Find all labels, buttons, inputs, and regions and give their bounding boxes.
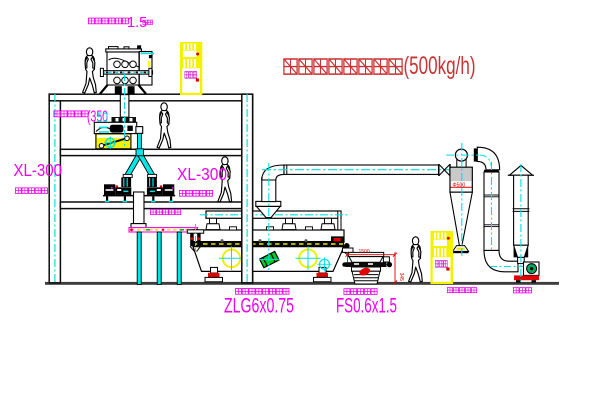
svg-text:1500: 1500 — [359, 249, 370, 255]
svg-text:Φ500: Φ500 — [453, 182, 466, 188]
svg-text:XL-300: XL-300 — [177, 164, 227, 184]
svg-text:1.5: 1.5 — [127, 15, 147, 31]
svg-text:50: 50 — [97, 110, 108, 125]
svg-text:(500kg/h): (500kg/h) — [404, 52, 476, 80]
svg-text:345: 345 — [398, 273, 404, 282]
svg-text:XL-300: XL-300 — [14, 160, 63, 180]
svg-text:FS0.6x1.5: FS0.6x1.5 — [336, 294, 397, 318]
svg-text:ZLG6x0.75: ZLG6x0.75 — [224, 294, 294, 318]
